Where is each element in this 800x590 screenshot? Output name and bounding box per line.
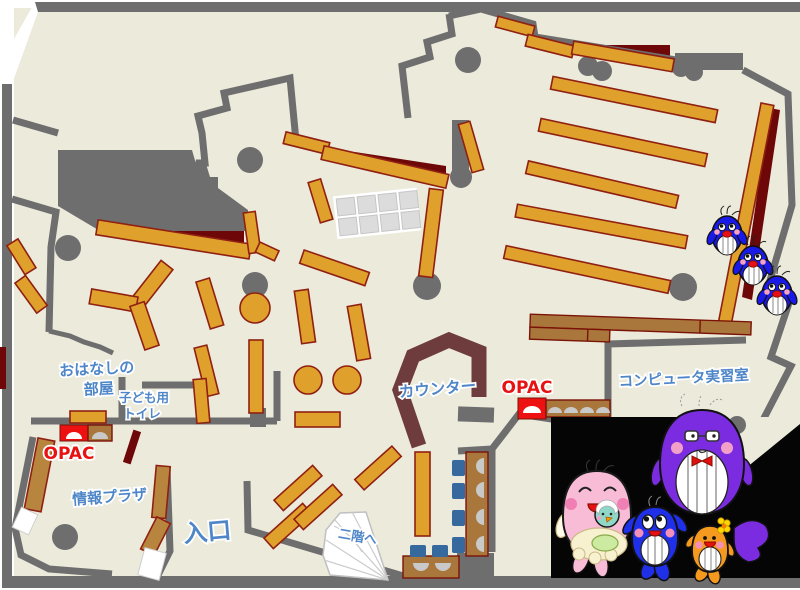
label-storytelling-room-line2: 部屋 xyxy=(83,379,114,399)
label-entrance: 入口 xyxy=(182,516,232,548)
grid-table xyxy=(333,188,421,240)
opac-station-right xyxy=(518,398,610,419)
label-opac-left: OPAC xyxy=(44,444,95,464)
label-kids-toilet-line1: 子ども用 xyxy=(119,390,169,405)
label-opac-right: OPAC xyxy=(502,378,553,398)
opac-station-left xyxy=(60,425,112,441)
label-kids-toilet-line2: トイレ xyxy=(123,406,161,421)
counter-gate xyxy=(458,406,495,422)
mascot-teal-baby-whale xyxy=(595,500,619,527)
wall-block-bottom xyxy=(457,553,494,578)
library-floor-map: おはなしの 部屋 子ども用 トイレ OPAC 情報プラザ 入口 カウンター OP… xyxy=(0,0,800,590)
